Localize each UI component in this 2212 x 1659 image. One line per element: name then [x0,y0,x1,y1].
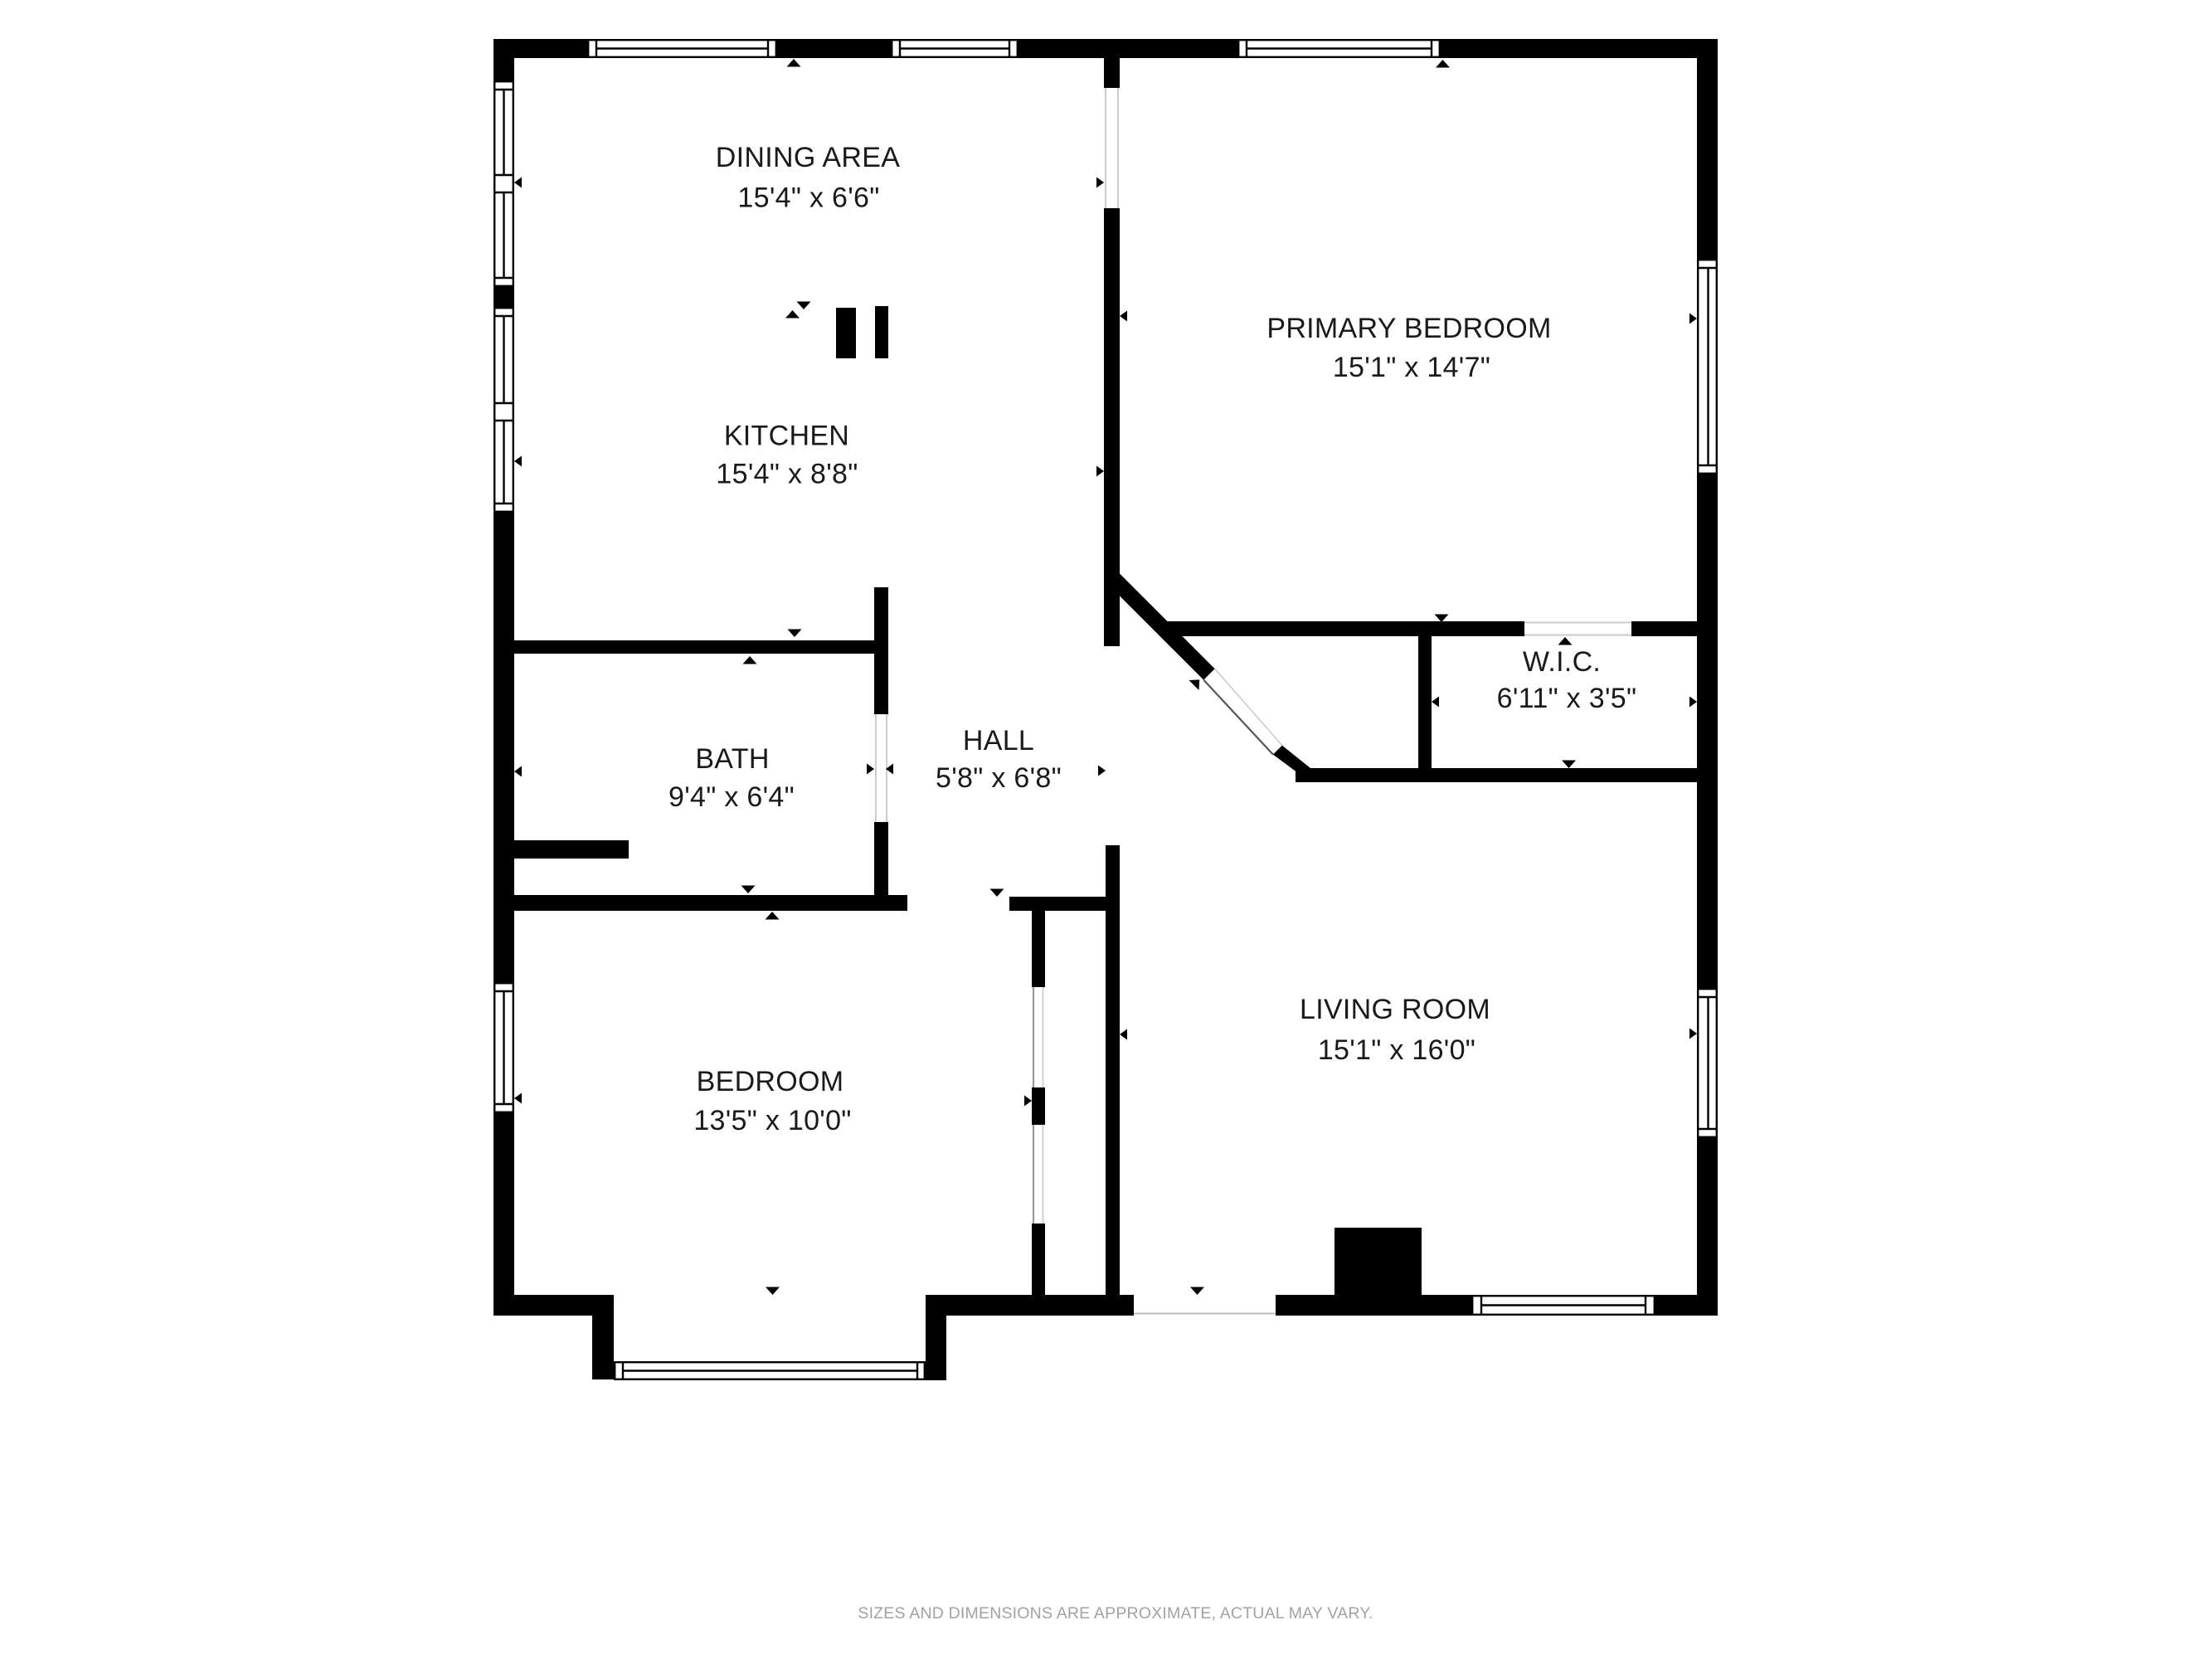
svg-text:15'4" x 8'8": 15'4" x 8'8" [716,459,858,490]
svg-text:6'11" x 3'5": 6'11" x 3'5" [1497,683,1637,714]
svg-text:DINING AREA: DINING AREA [716,142,900,173]
svg-text:15'4" x 6'6": 15'4" x 6'6" [737,182,879,214]
svg-text:KITCHEN: KITCHEN [724,421,849,452]
svg-text:15'1" x 14'7": 15'1" x 14'7" [1333,352,1490,383]
svg-text:15'1" x 16'0": 15'1" x 16'0" [1318,1034,1475,1066]
svg-text:LIVING ROOM: LIVING ROOM [1300,994,1490,1025]
svg-text:BATH: BATH [695,743,769,775]
svg-text:SIZES AND DIMENSIONS ARE APPRO: SIZES AND DIMENSIONS ARE APPROXIMATE, AC… [858,1604,1373,1623]
svg-text:9'4" x 6'4": 9'4" x 6'4" [668,781,795,813]
svg-text:HALL: HALL [963,725,1034,757]
svg-text:W.I.C.: W.I.C. [1523,646,1601,678]
svg-text:5'8" x 6'8": 5'8" x 6'8" [936,762,1062,794]
svg-text:BEDROOM: BEDROOM [697,1066,844,1097]
svg-text:13'5" x 10'0": 13'5" x 10'0" [693,1105,851,1136]
svg-text:PRIMARY BEDROOM: PRIMARY BEDROOM [1266,313,1551,344]
